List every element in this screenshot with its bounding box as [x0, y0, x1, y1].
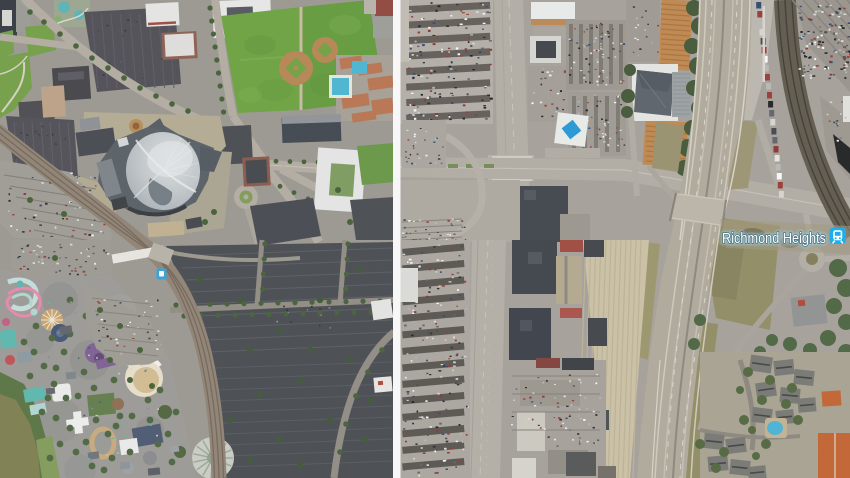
svg-text:Richmond Heights: Richmond Heights — [722, 231, 826, 247]
